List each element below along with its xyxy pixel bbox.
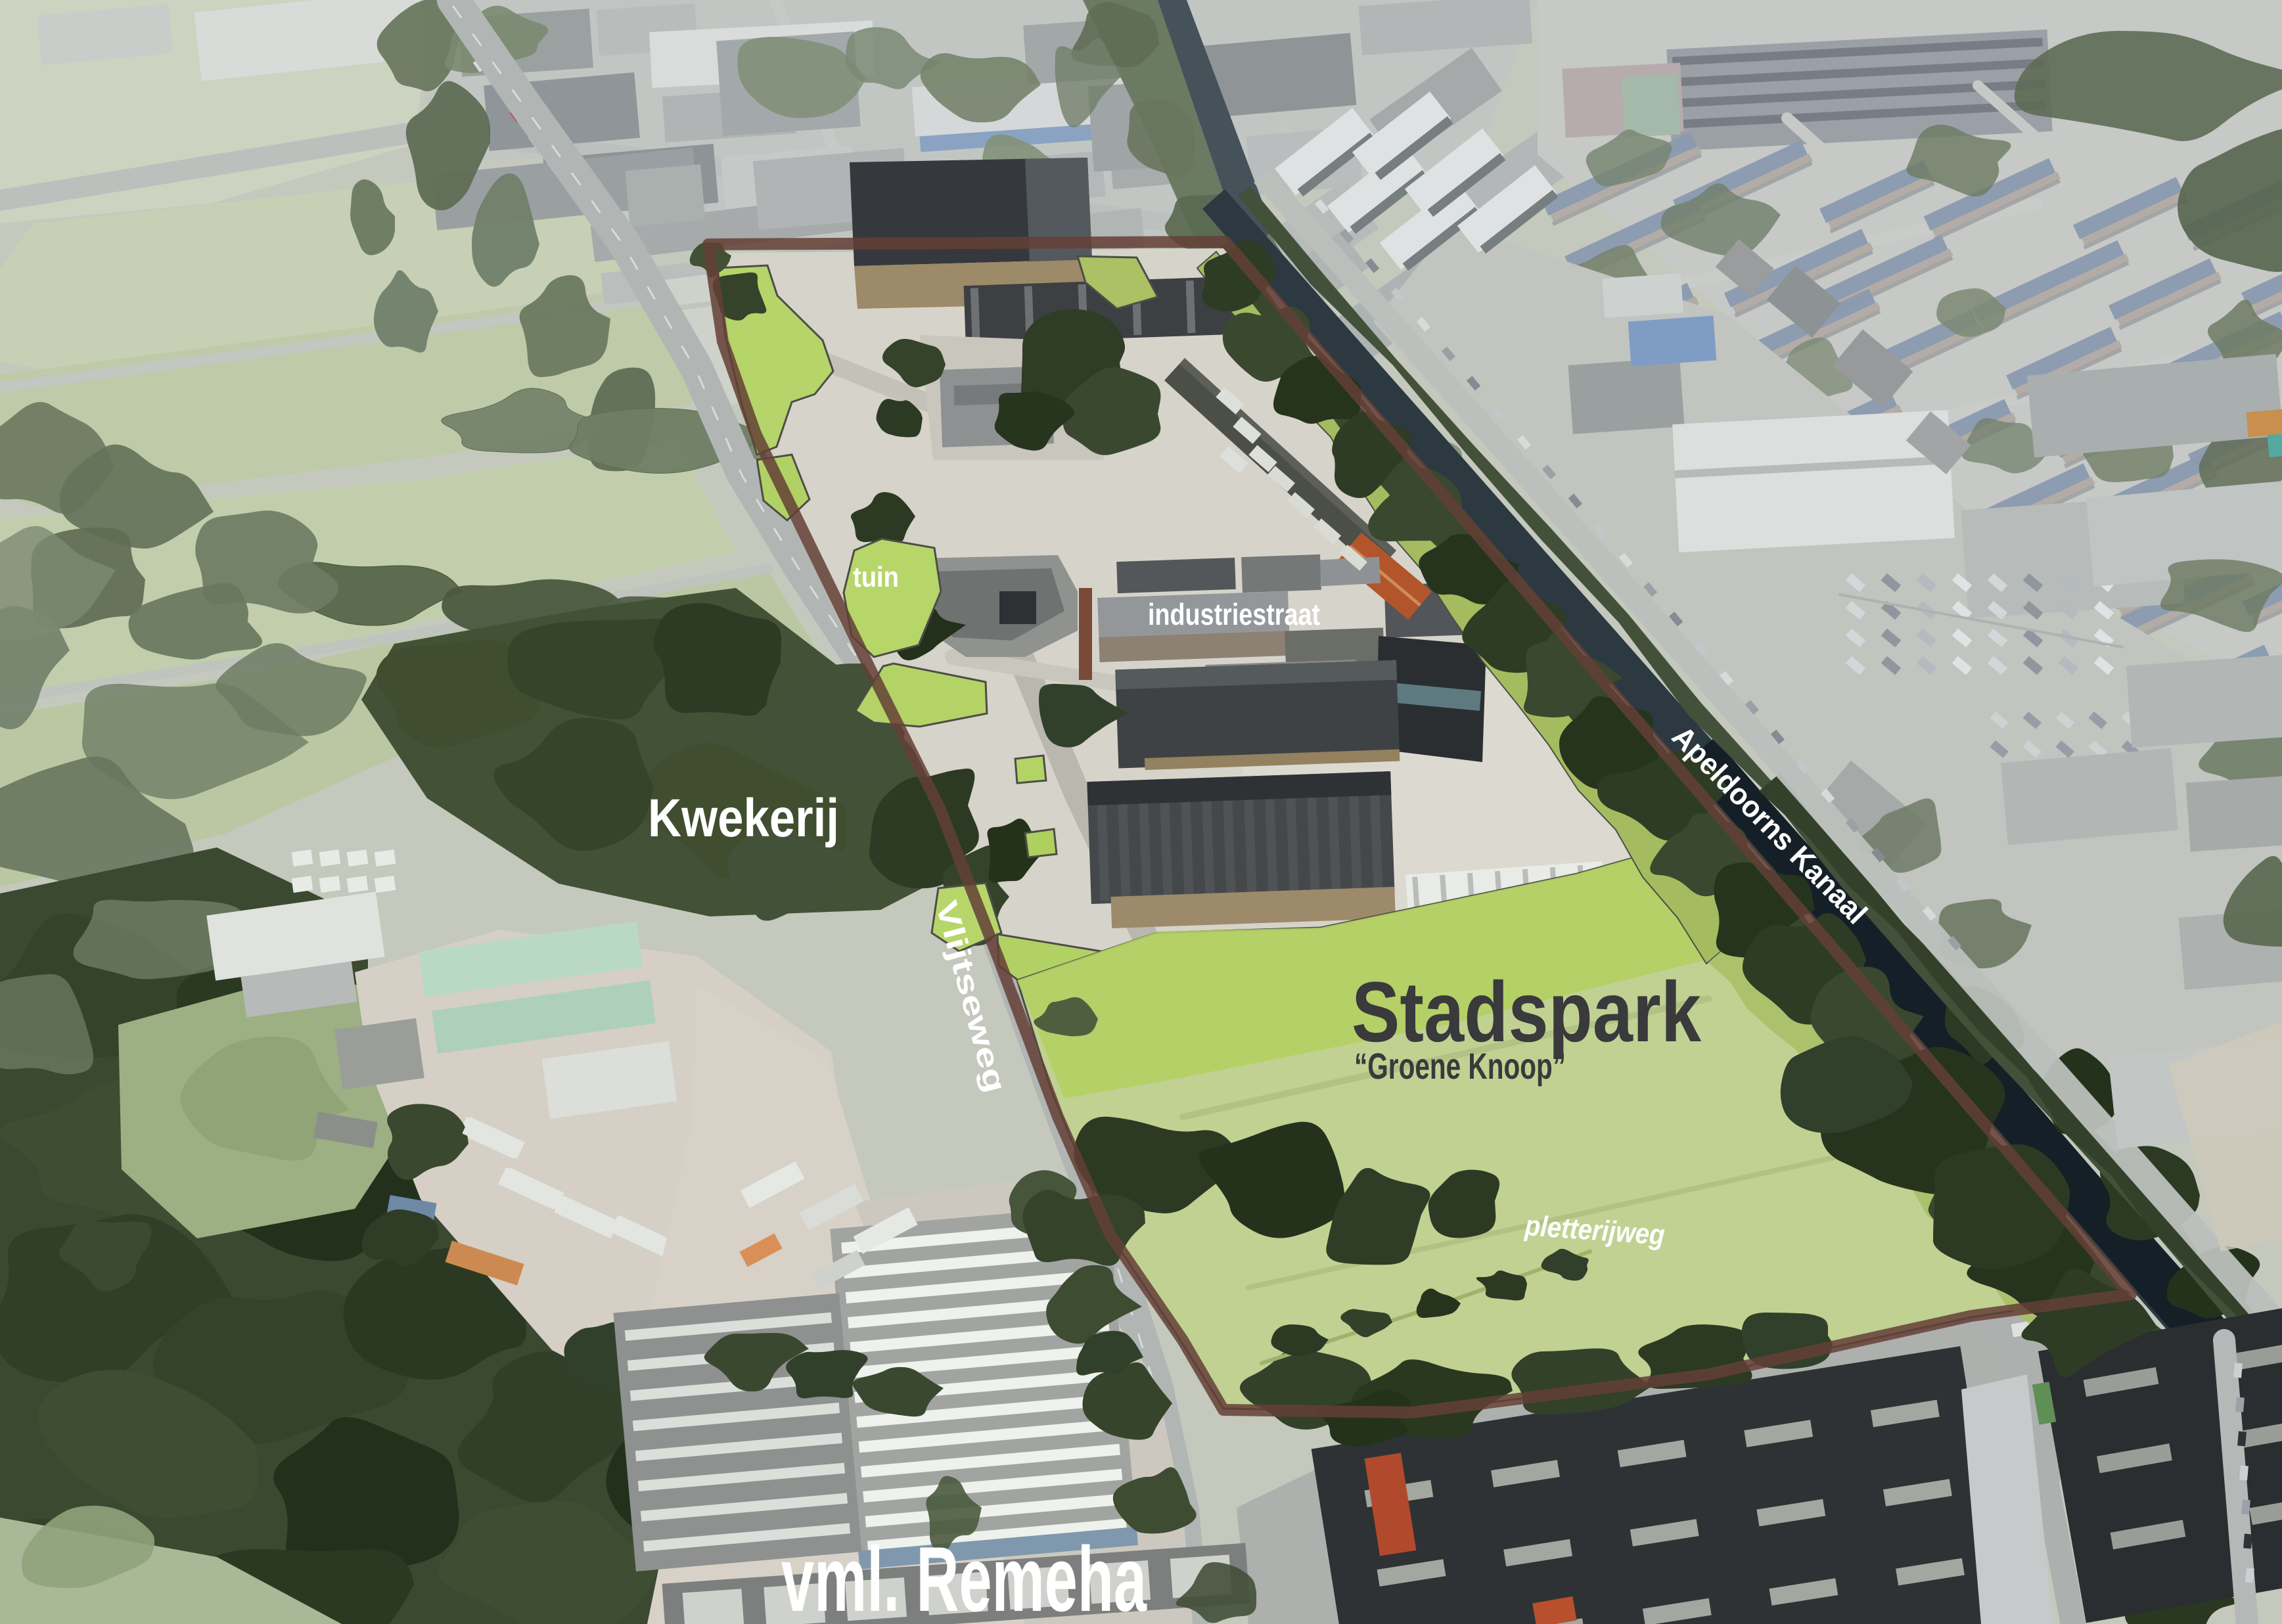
svg-text:vml. Remeha: vml. Remeha [781,1527,1147,1624]
svg-text:Kwekerij: Kwekerij [648,788,839,848]
svg-text:industriestraat: industriestraat [1148,597,1320,631]
svg-text:tuin: tuin [853,561,899,593]
svg-text:“Groene Knoop”: “Groene Knoop” [1354,1045,1566,1087]
